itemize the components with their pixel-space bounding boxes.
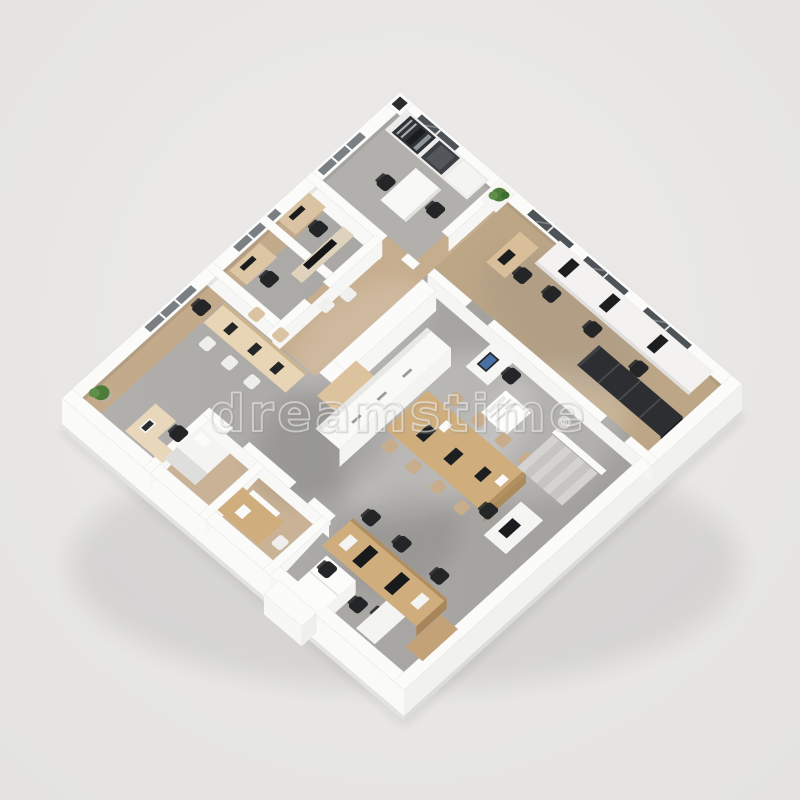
stock-photo-canvas: dreamstime dreamstime ® [0,0,800,800]
watermark-registered-icon: ® [556,413,576,432]
watermark-text: dreamstime [209,385,588,444]
watermark: dreamstime dreamstime ® [209,385,589,445]
floorplan-render-image: dreamstime dreamstime ® [0,0,800,800]
